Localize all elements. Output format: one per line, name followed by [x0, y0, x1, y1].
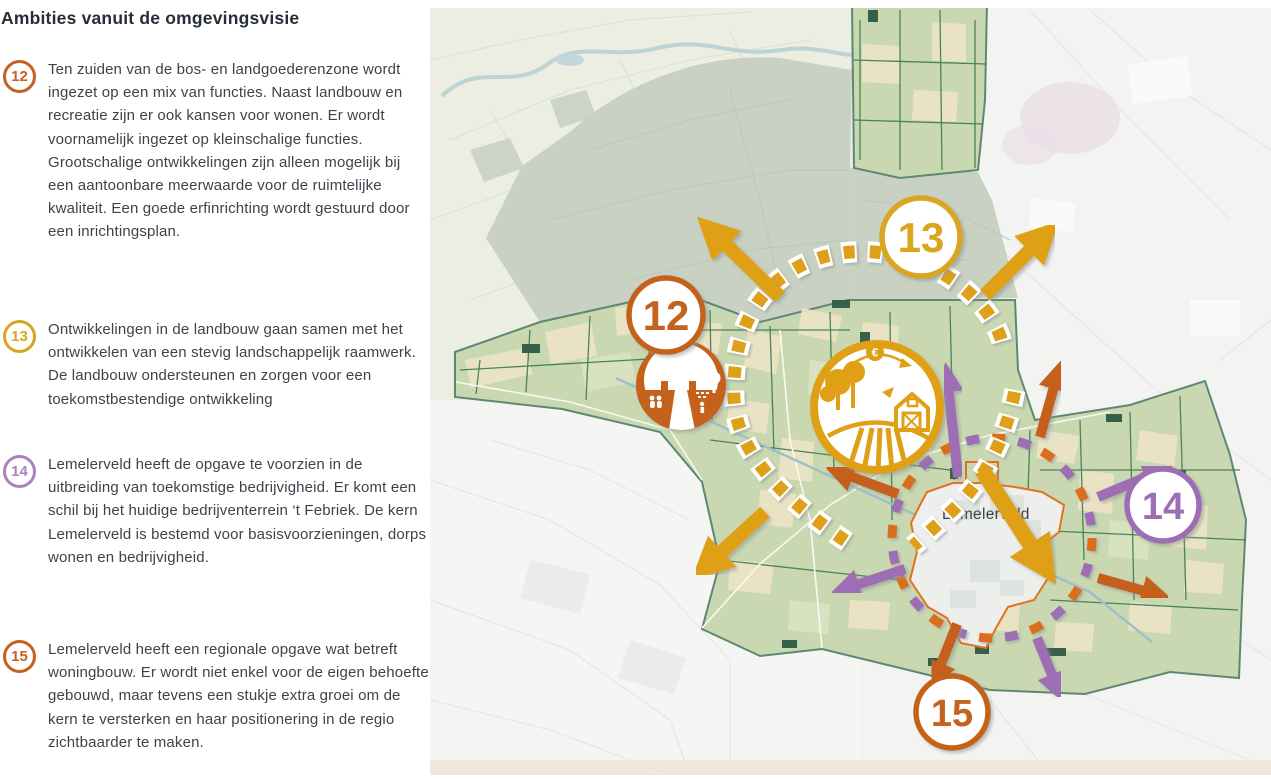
- ambition-item-13: 13 Ontwikkelingen in de landbouw gaan sa…: [0, 318, 430, 411]
- ambitions-panel: Ambities vanuit de omgevingsvisie 12 Ten…: [0, 0, 430, 775]
- ambition-item-12: 12 Ten zuiden van de bos- en landgoedere…: [0, 58, 430, 244]
- farm-economy-icon: €: [810, 340, 944, 474]
- ambition-item-14: 14 Lemelerveld heeft de opgave te voorzi…: [0, 453, 430, 569]
- ambition-text-13: Ontwikkelingen in de landbouw gaan samen…: [48, 318, 430, 411]
- map-edge-strip: [430, 760, 1271, 775]
- euro-icon: €: [872, 346, 879, 360]
- ambition-item-15: 15 Lemelerveld heeft een regionale opgav…: [0, 638, 430, 754]
- ambition-badge-14: 14: [3, 455, 36, 488]
- map-badge-13: 13: [882, 198, 960, 276]
- map-badge-15: 15: [916, 676, 988, 748]
- map-badge-13-number: 13: [898, 214, 945, 261]
- map-badge-12-number: 12: [643, 292, 690, 339]
- vision-map-svg: Lemelerveld: [430, 0, 1271, 775]
- vision-map: Lemelerveld: [430, 0, 1271, 775]
- map-badge-12: 12: [629, 278, 703, 352]
- ambition-badge-15: 15: [3, 640, 36, 673]
- ambition-text-12: Ten zuiden van de bos- en landgoederenzo…: [48, 58, 430, 244]
- page-title: Ambities vanuit de omgevingsvisie: [1, 8, 299, 29]
- ambition-badge-12: 12: [3, 60, 36, 93]
- ambition-text-15: Lemelerveld heeft een regionale opgave w…: [48, 638, 430, 754]
- ambition-text-14: Lemelerveld heeft de opgave te voorzien …: [48, 453, 430, 569]
- map-badge-14-number: 14: [1142, 486, 1184, 528]
- map-badge-15-number: 15: [931, 693, 973, 735]
- river-pond: [556, 54, 584, 66]
- map-badge-14: 14: [1127, 469, 1199, 541]
- ambition-badge-13: 13: [3, 320, 36, 353]
